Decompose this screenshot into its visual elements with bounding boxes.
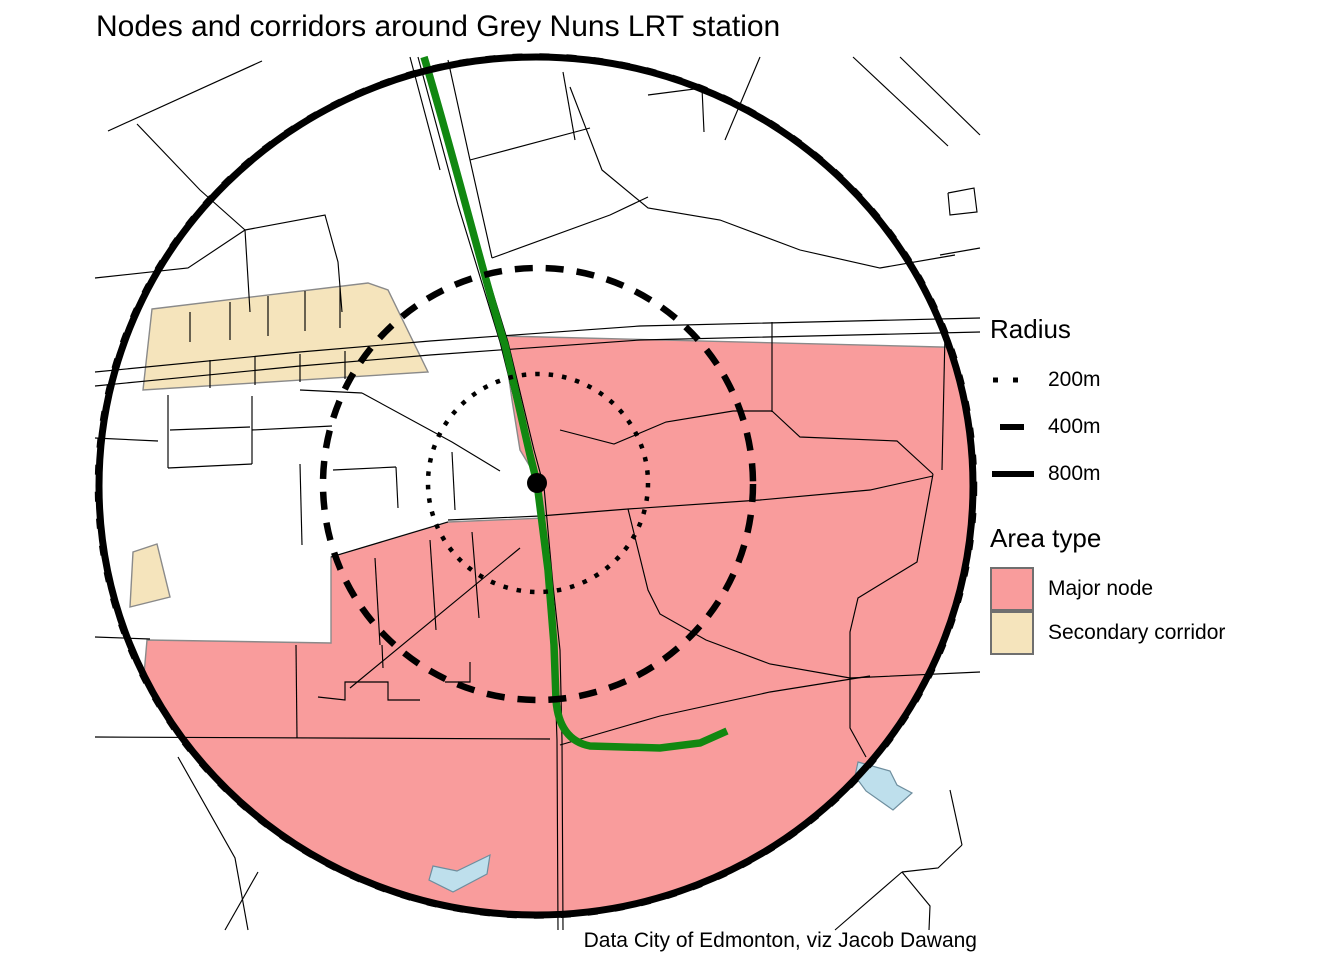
legend-radius-items: 200m400m800m bbox=[990, 356, 1342, 497]
area-swatch-icon bbox=[990, 611, 1034, 655]
figure-title: Nodes and corridors around Grey Nuns LRT… bbox=[96, 10, 780, 44]
road-line bbox=[948, 188, 977, 215]
caption: Data City of Edmonton, viz Jacob Dawang bbox=[584, 929, 977, 953]
legend-area-item: Secondary corridor bbox=[990, 611, 1342, 655]
road-line bbox=[252, 426, 332, 430]
legend-radius-label: 200m bbox=[1048, 368, 1101, 392]
radius-solid-line-icon bbox=[990, 468, 1036, 480]
road-line bbox=[902, 872, 930, 930]
road-line bbox=[300, 464, 302, 545]
radius-dashed-line-icon bbox=[990, 421, 1036, 433]
legend-area-title: Area type bbox=[990, 523, 1342, 553]
figure: Nodes and corridors around Grey Nuns LRT… bbox=[0, 0, 1344, 960]
legend-radius-label: 800m bbox=[1048, 462, 1101, 486]
legend-area-label: Major node bbox=[1048, 577, 1153, 601]
road-line bbox=[900, 57, 980, 135]
road-line bbox=[853, 57, 948, 146]
road-line bbox=[940, 248, 980, 255]
road-line bbox=[108, 61, 262, 131]
legend-radius-title: Radius bbox=[990, 314, 1342, 344]
legend-radius-label: 400m bbox=[1048, 415, 1101, 439]
road-line bbox=[168, 464, 252, 468]
road-line bbox=[396, 467, 398, 508]
road-line bbox=[170, 427, 250, 430]
legend-area-item: Major node bbox=[990, 567, 1342, 611]
road-line bbox=[95, 637, 150, 639]
legend-radius-item-400m: 400m bbox=[990, 403, 1342, 450]
legend-area-items: Major nodeSecondary corridor bbox=[990, 567, 1342, 655]
area-swatch-icon bbox=[990, 567, 1034, 611]
road-line bbox=[300, 390, 362, 393]
road-line bbox=[492, 197, 648, 258]
lrt-station-dot bbox=[527, 473, 547, 493]
road-line bbox=[950, 790, 962, 845]
road-line bbox=[648, 88, 704, 132]
road-line bbox=[902, 845, 962, 872]
road-line bbox=[452, 452, 455, 510]
road-line bbox=[563, 72, 575, 140]
legend-area-label: Secondary corridor bbox=[1048, 621, 1225, 645]
major-node-area bbox=[120, 336, 980, 950]
legend-radius-item-800m: 800m bbox=[990, 450, 1342, 497]
road-line bbox=[333, 467, 396, 470]
secondary-corridor-area bbox=[130, 544, 170, 607]
radius-dotted-line-icon bbox=[990, 374, 1036, 386]
road-line bbox=[225, 872, 258, 930]
legend-radius-item-200m: 200m bbox=[990, 356, 1342, 403]
legend: Radius 200m400m800m Area type Major node… bbox=[990, 314, 1342, 655]
road-line bbox=[470, 128, 590, 160]
road-line bbox=[835, 872, 902, 930]
